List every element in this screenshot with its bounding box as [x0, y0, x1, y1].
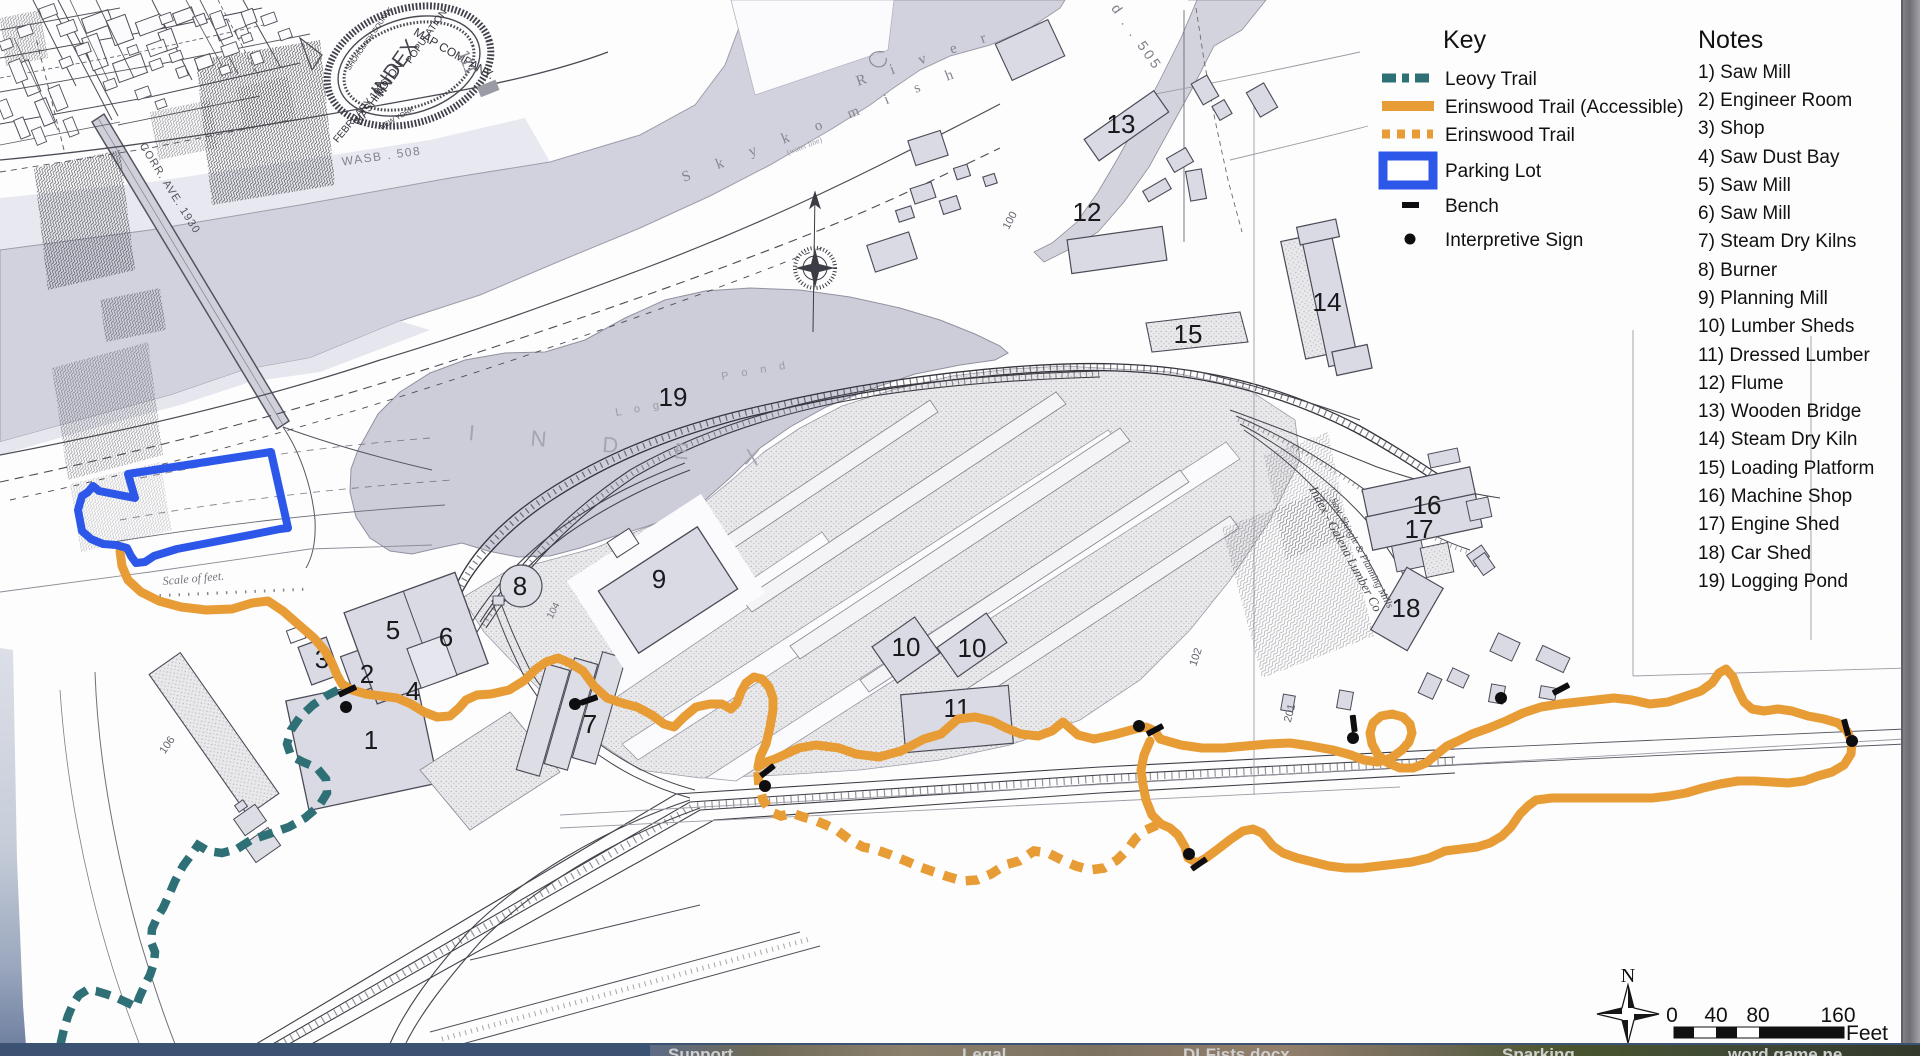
svg-text:12) Flume: 12) Flume: [1698, 373, 1784, 394]
svg-text:1: 1: [364, 725, 378, 755]
svg-text:19: 19: [659, 382, 688, 412]
svg-text:DLFists.docx: DLFists.docx: [1183, 1045, 1290, 1056]
svg-text:40: 40: [1704, 1004, 1727, 1027]
svg-text:10) Lumber Sheds: 10) Lumber Sheds: [1698, 316, 1854, 337]
svg-text:12: 12: [1073, 197, 1102, 227]
svg-text:15: 15: [1174, 319, 1203, 349]
svg-text:6: 6: [439, 622, 453, 652]
svg-text:3) Shop: 3) Shop: [1698, 118, 1765, 139]
svg-text:Sparking: Sparking: [1502, 1045, 1575, 1056]
svg-text:9: 9: [652, 564, 666, 594]
svg-text:19) Logging Pond: 19) Logging Pond: [1698, 571, 1848, 592]
svg-text:17: 17: [1405, 514, 1434, 544]
svg-text:80: 80: [1746, 1004, 1769, 1027]
svg-text:Erinswood Trail (Accessible): Erinswood Trail (Accessible): [1445, 97, 1684, 118]
svg-text:word game ne: word game ne: [1727, 1045, 1842, 1056]
svg-text:14) Steam Dry Kiln: 14) Steam Dry Kiln: [1698, 429, 1857, 450]
svg-text:8) Burner: 8) Burner: [1698, 260, 1778, 281]
svg-text:Support: Support: [668, 1045, 733, 1056]
svg-text:10: 10: [958, 633, 987, 663]
svg-text:11) Dressed Lumber: 11) Dressed Lumber: [1698, 345, 1870, 366]
svg-text:1) Saw Mill: 1) Saw Mill: [1698, 62, 1791, 83]
svg-text:2: 2: [360, 659, 374, 689]
svg-text:5) Saw Mill: 5) Saw Mill: [1698, 175, 1791, 196]
svg-text:7) Steam Dry Kilns: 7) Steam Dry Kilns: [1698, 231, 1856, 252]
svg-text:Interpretive Sign: Interpretive Sign: [1445, 230, 1583, 251]
svg-text:8: 8: [513, 571, 527, 601]
svg-text:Feet: Feet: [1846, 1022, 1888, 1045]
svg-text:18) Car Shed: 18) Car Shed: [1698, 543, 1811, 564]
svg-text:0: 0: [1666, 1004, 1678, 1027]
svg-text:Erinswood Trail: Erinswood Trail: [1445, 125, 1575, 146]
svg-text:16) Machine Shop: 16) Machine Shop: [1698, 486, 1852, 507]
svg-text:Key: Key: [1443, 26, 1487, 54]
svg-text:Parking Lot: Parking Lot: [1445, 161, 1542, 182]
svg-text:Legal: Legal: [962, 1045, 1006, 1056]
svg-text:10: 10: [892, 632, 921, 662]
svg-text:Leovy Trail: Leovy Trail: [1445, 69, 1537, 90]
svg-text:Notes: Notes: [1698, 26, 1763, 54]
svg-text:14: 14: [1313, 287, 1342, 317]
svg-text:2) Engineer Room: 2) Engineer Room: [1698, 90, 1852, 111]
svg-text:5: 5: [386, 615, 400, 645]
svg-text:Bench: Bench: [1445, 196, 1499, 217]
svg-text:9) Planning Mill: 9) Planning Mill: [1698, 288, 1828, 309]
svg-text:13: 13: [1107, 109, 1136, 139]
svg-text:15) Loading Platform: 15) Loading Platform: [1698, 458, 1874, 479]
svg-text:17) Engine Shed: 17) Engine Shed: [1698, 514, 1840, 535]
svg-text:4) Saw Dust Bay: 4) Saw Dust Bay: [1698, 147, 1840, 168]
svg-text:13) Wooden Bridge: 13) Wooden Bridge: [1698, 401, 1861, 422]
svg-text:7: 7: [583, 709, 597, 739]
svg-text:6) Saw Mill: 6) Saw Mill: [1698, 203, 1791, 224]
svg-text:18: 18: [1392, 593, 1421, 623]
